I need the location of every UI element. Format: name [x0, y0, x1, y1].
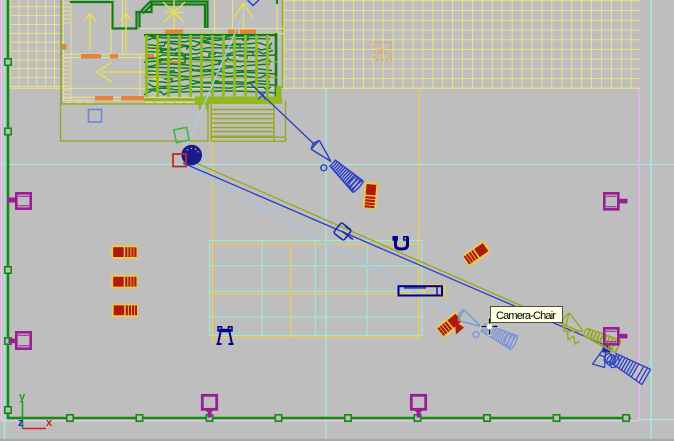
svg-text:z: z	[18, 417, 24, 429]
svg-text:x: x	[46, 417, 53, 429]
svg-text:Camera-Chair: Camera-Chair	[496, 310, 556, 322]
